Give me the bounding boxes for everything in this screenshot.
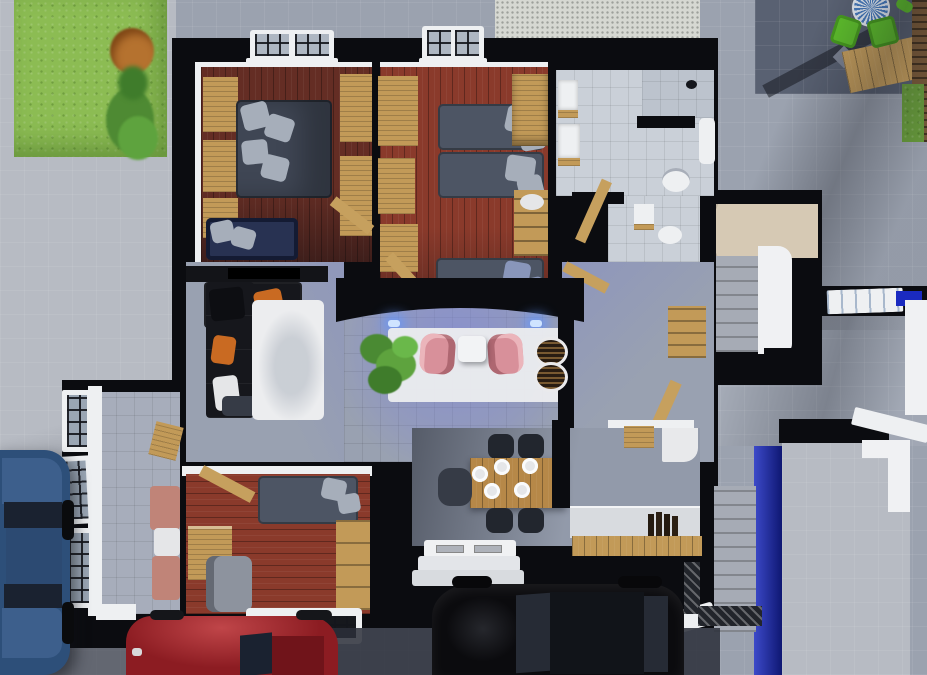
bedroom1-window-sill	[246, 58, 338, 67]
led-light-left	[388, 320, 400, 327]
black-car-wheel-1	[452, 576, 492, 588]
black-car-rear-window	[644, 596, 668, 672]
hall-cabinet	[668, 306, 706, 358]
bedroom1-window-panes	[255, 34, 289, 56]
fence-section-2	[698, 606, 762, 626]
black-car-roof	[550, 592, 644, 674]
floor-plan-render	[0, 0, 927, 675]
bath-divider-wall	[637, 116, 695, 128]
black-car-hood-highlight	[446, 596, 520, 662]
stair-steps	[716, 256, 760, 352]
blue-car-wheel-2	[62, 602, 74, 644]
vanity-1	[558, 80, 578, 110]
stair-landing-right	[792, 212, 818, 258]
gravel-strip	[495, 0, 700, 42]
decor-tray-2	[534, 362, 568, 392]
black-car-wheel-2	[618, 576, 662, 588]
toilet-small	[658, 226, 682, 244]
b2-wardrobe-2	[378, 158, 415, 214]
blue-car-roof	[6, 528, 62, 584]
living-rug	[252, 300, 324, 420]
b3-pillow-2	[337, 492, 362, 515]
bathroom-small-floor	[608, 196, 700, 262]
vanity-2-shelf	[558, 158, 580, 166]
porch-vent-1	[436, 545, 464, 553]
blue-accent-wall	[754, 446, 782, 675]
toilet-main	[662, 168, 690, 192]
dining-armchair	[438, 468, 472, 506]
plate-1	[472, 466, 488, 482]
b2-basin	[520, 194, 544, 210]
wing-salmon-sofa-2	[152, 556, 180, 600]
plate-3	[522, 458, 538, 474]
plant-leaf-4	[392, 336, 418, 358]
kitchen-bottle-4	[672, 516, 678, 536]
wing-bottom-sill	[96, 604, 136, 620]
bedroom2-window	[422, 26, 484, 62]
shower-head	[686, 80, 697, 89]
kitchen-wall-cabinet	[624, 426, 654, 448]
b1-nightstand-2	[203, 140, 238, 192]
white-wall-right	[905, 300, 927, 415]
bedroom1-window-panes-2	[295, 34, 329, 56]
kitchen-white-unit	[662, 428, 698, 462]
back-patio-wall-v	[888, 452, 910, 512]
kitchen-counter-wood	[572, 536, 702, 556]
b2-desk	[512, 74, 548, 146]
b3-chair	[206, 556, 252, 612]
sofa-cushion-black	[208, 286, 245, 321]
dining-partition-wall	[552, 420, 570, 508]
stair-wall	[758, 246, 792, 354]
red-car-windshield	[240, 632, 272, 675]
bedroom2-window-sill	[419, 58, 487, 67]
dining-chair-bottom-2	[518, 508, 544, 533]
black-car-windshield	[516, 593, 550, 673]
blue-car-rear-window	[4, 584, 62, 608]
kitchen-counter	[570, 506, 700, 538]
pink-armchair-right	[487, 333, 525, 375]
sofa-orange-pillow-2	[210, 335, 237, 366]
dining-chair-bottom-1	[486, 508, 513, 533]
dining-chair-top-2	[518, 434, 544, 459]
bay-window-3-panes	[69, 533, 89, 603]
kitchen-bottle-1	[648, 514, 654, 536]
blue-car	[0, 450, 70, 675]
sink-small-shelf	[634, 224, 654, 230]
plate-4	[484, 483, 500, 499]
b1-nightstand-1	[203, 77, 238, 132]
red-car-wheel-2	[296, 610, 332, 620]
pink-armchair-left	[419, 333, 457, 375]
vanity-1-shelf	[558, 110, 578, 118]
kitchen-bottle-3	[664, 514, 670, 536]
blue-car-hood	[2, 458, 62, 504]
bedroom2-window-panes	[427, 30, 451, 56]
bedroom2-window-panes-2	[455, 30, 479, 56]
bay-window-1-panes	[67, 395, 87, 447]
porch-vent-2	[474, 545, 502, 553]
plant-leaf-3	[368, 366, 402, 394]
wing-white-pillow	[154, 528, 180, 556]
led-light-right	[530, 320, 542, 327]
plate-5	[514, 482, 530, 498]
b2-wardrobe-1	[378, 76, 418, 146]
blue-car-trunk	[2, 608, 62, 658]
b1-wardrobe-1	[340, 74, 372, 142]
bay-window-1	[62, 390, 92, 452]
shower-door	[699, 118, 715, 164]
garden-tree-bush-2	[118, 116, 158, 160]
wing-salmon-sofa-1	[150, 486, 180, 530]
garden-tree-trunk-shade	[118, 66, 148, 100]
sink-small	[634, 204, 654, 224]
blue-car-wheel-1	[62, 500, 74, 540]
blue-car-windshield	[4, 502, 62, 528]
red-car	[126, 616, 338, 675]
tv-screen	[228, 268, 300, 279]
garden-wall-window	[827, 288, 904, 315]
red-car-wheel-1	[150, 610, 184, 620]
black-car	[432, 584, 684, 675]
curved-accent-wall	[336, 278, 584, 326]
dining-chair-top-1	[488, 434, 514, 459]
shower-zone	[642, 70, 714, 118]
b3-wardrobe	[336, 520, 370, 610]
red-car-headlight	[132, 648, 142, 656]
coffee-table	[458, 336, 486, 362]
vanity-2	[558, 124, 580, 158]
kitchen-bottle-2	[656, 512, 662, 536]
red-car-roof	[272, 636, 324, 675]
plate-2	[494, 459, 510, 475]
stair-wall-cap	[764, 348, 792, 382]
